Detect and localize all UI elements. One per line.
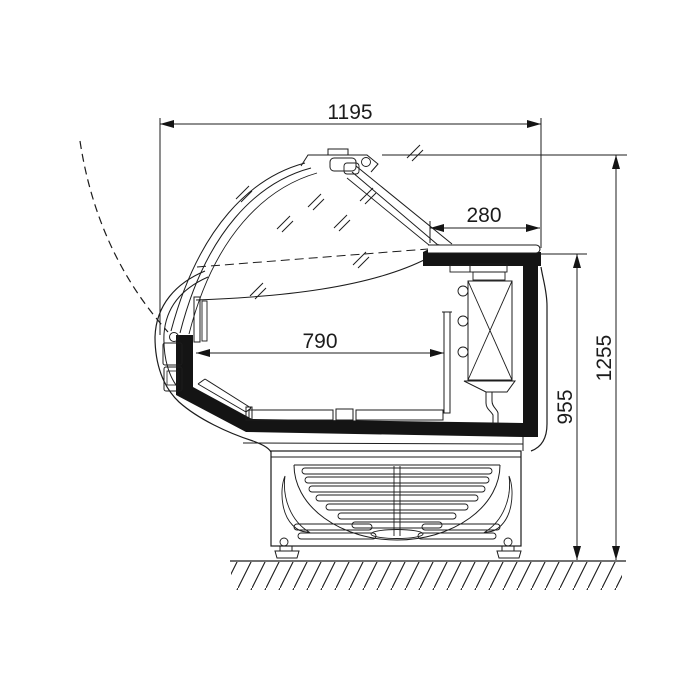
grille-louver xyxy=(352,522,442,528)
foot-base xyxy=(275,551,299,558)
display-case-section-drawing: 1195 280 790 955 1255 xyxy=(0,0,700,700)
grille-louver xyxy=(326,504,468,510)
ventilation-grille xyxy=(282,465,512,540)
arrowhead-icon xyxy=(526,224,540,232)
front-glass-outer xyxy=(171,163,305,331)
front-glass-liner xyxy=(189,173,317,334)
arrowhead-icon xyxy=(612,546,620,560)
coil-bracket xyxy=(458,286,468,296)
lamp-housing xyxy=(301,149,378,174)
coil-bracket xyxy=(458,347,468,357)
glass-hatch-mark xyxy=(236,186,252,202)
dim-label-worktop-height: 955 xyxy=(554,389,577,424)
grille-louver-short xyxy=(422,524,500,530)
grille-louver-short xyxy=(294,524,372,530)
rear-glass-liner xyxy=(347,178,440,254)
deck-slope-end xyxy=(198,379,205,384)
rear-glass-inner xyxy=(352,172,445,251)
grille-louver xyxy=(302,468,492,474)
counter-worktop xyxy=(428,245,540,253)
insulation-profile xyxy=(176,244,541,437)
grille-shell xyxy=(294,465,500,540)
rear-glass-outer xyxy=(356,166,452,244)
glass-swing-arc xyxy=(80,141,168,332)
dim-label-rear-shelf-depth: 280 xyxy=(466,204,501,227)
dim-label-overall-height: 1255 xyxy=(593,335,616,382)
dim-label-overall-width: 1195 xyxy=(327,101,372,124)
handle-cap xyxy=(328,149,348,155)
arrowhead-icon xyxy=(430,224,444,232)
glass-hatch-mark xyxy=(334,215,350,231)
arrowhead-icon xyxy=(196,349,210,357)
base-plinth xyxy=(271,451,521,558)
divider-glass xyxy=(444,312,450,413)
grille-louver xyxy=(309,486,485,492)
arrowhead-icon xyxy=(573,254,581,268)
dim-display-well-width: 790 xyxy=(196,330,444,357)
front-glass-frame-rail-2 xyxy=(202,301,207,341)
hidden-lines xyxy=(80,141,428,332)
dim-overall-height: 1255 xyxy=(382,155,627,560)
plinth-hole xyxy=(504,538,512,546)
foot-stem xyxy=(280,546,292,551)
arrowhead-icon xyxy=(160,120,174,128)
coil-bracket xyxy=(458,316,468,326)
rear-glass xyxy=(347,166,452,254)
lamp-bracket xyxy=(344,163,359,174)
lamp-tube xyxy=(330,158,356,171)
dim-rear-shelf-depth: 280 xyxy=(430,204,540,243)
insulated-front-and-deck xyxy=(176,335,523,437)
insulated-rear-wall xyxy=(523,266,538,437)
technical-drawing-page: 1195 280 790 955 1255 xyxy=(0,0,700,700)
foot-base xyxy=(497,551,521,558)
ground-hatching xyxy=(231,562,622,590)
lamp-end-cap xyxy=(362,158,371,167)
deck-tray-joint xyxy=(336,409,353,420)
front-glass-frame-rail xyxy=(194,297,200,342)
leveling-feet xyxy=(275,546,521,558)
dim-label-display-well-width: 790 xyxy=(302,330,337,353)
foot-stem xyxy=(502,546,514,551)
arrowhead-icon xyxy=(527,120,541,128)
grille-louver xyxy=(338,513,456,519)
hidden-shelf-line xyxy=(197,249,428,267)
grille-bottom-vent xyxy=(371,530,423,539)
grille-louver xyxy=(316,495,478,501)
arrowhead-icon xyxy=(612,155,620,169)
plinth-hole xyxy=(280,538,288,546)
glass-hatch-marks xyxy=(236,145,423,299)
counter-clip xyxy=(450,265,470,272)
glass-hatch-mark xyxy=(308,194,324,210)
under-counter-line xyxy=(243,443,523,444)
grille-louver xyxy=(305,477,489,483)
glass-hatch-mark xyxy=(277,216,293,232)
drip-tray xyxy=(464,381,515,392)
deck-tray xyxy=(356,410,443,420)
deck-tray xyxy=(249,410,333,420)
arrowhead-icon xyxy=(573,546,581,560)
evaporator-mount-lower xyxy=(473,272,505,280)
ground xyxy=(230,561,626,590)
glass-hatch-mark xyxy=(407,145,423,161)
arrowhead-icon xyxy=(430,349,444,357)
